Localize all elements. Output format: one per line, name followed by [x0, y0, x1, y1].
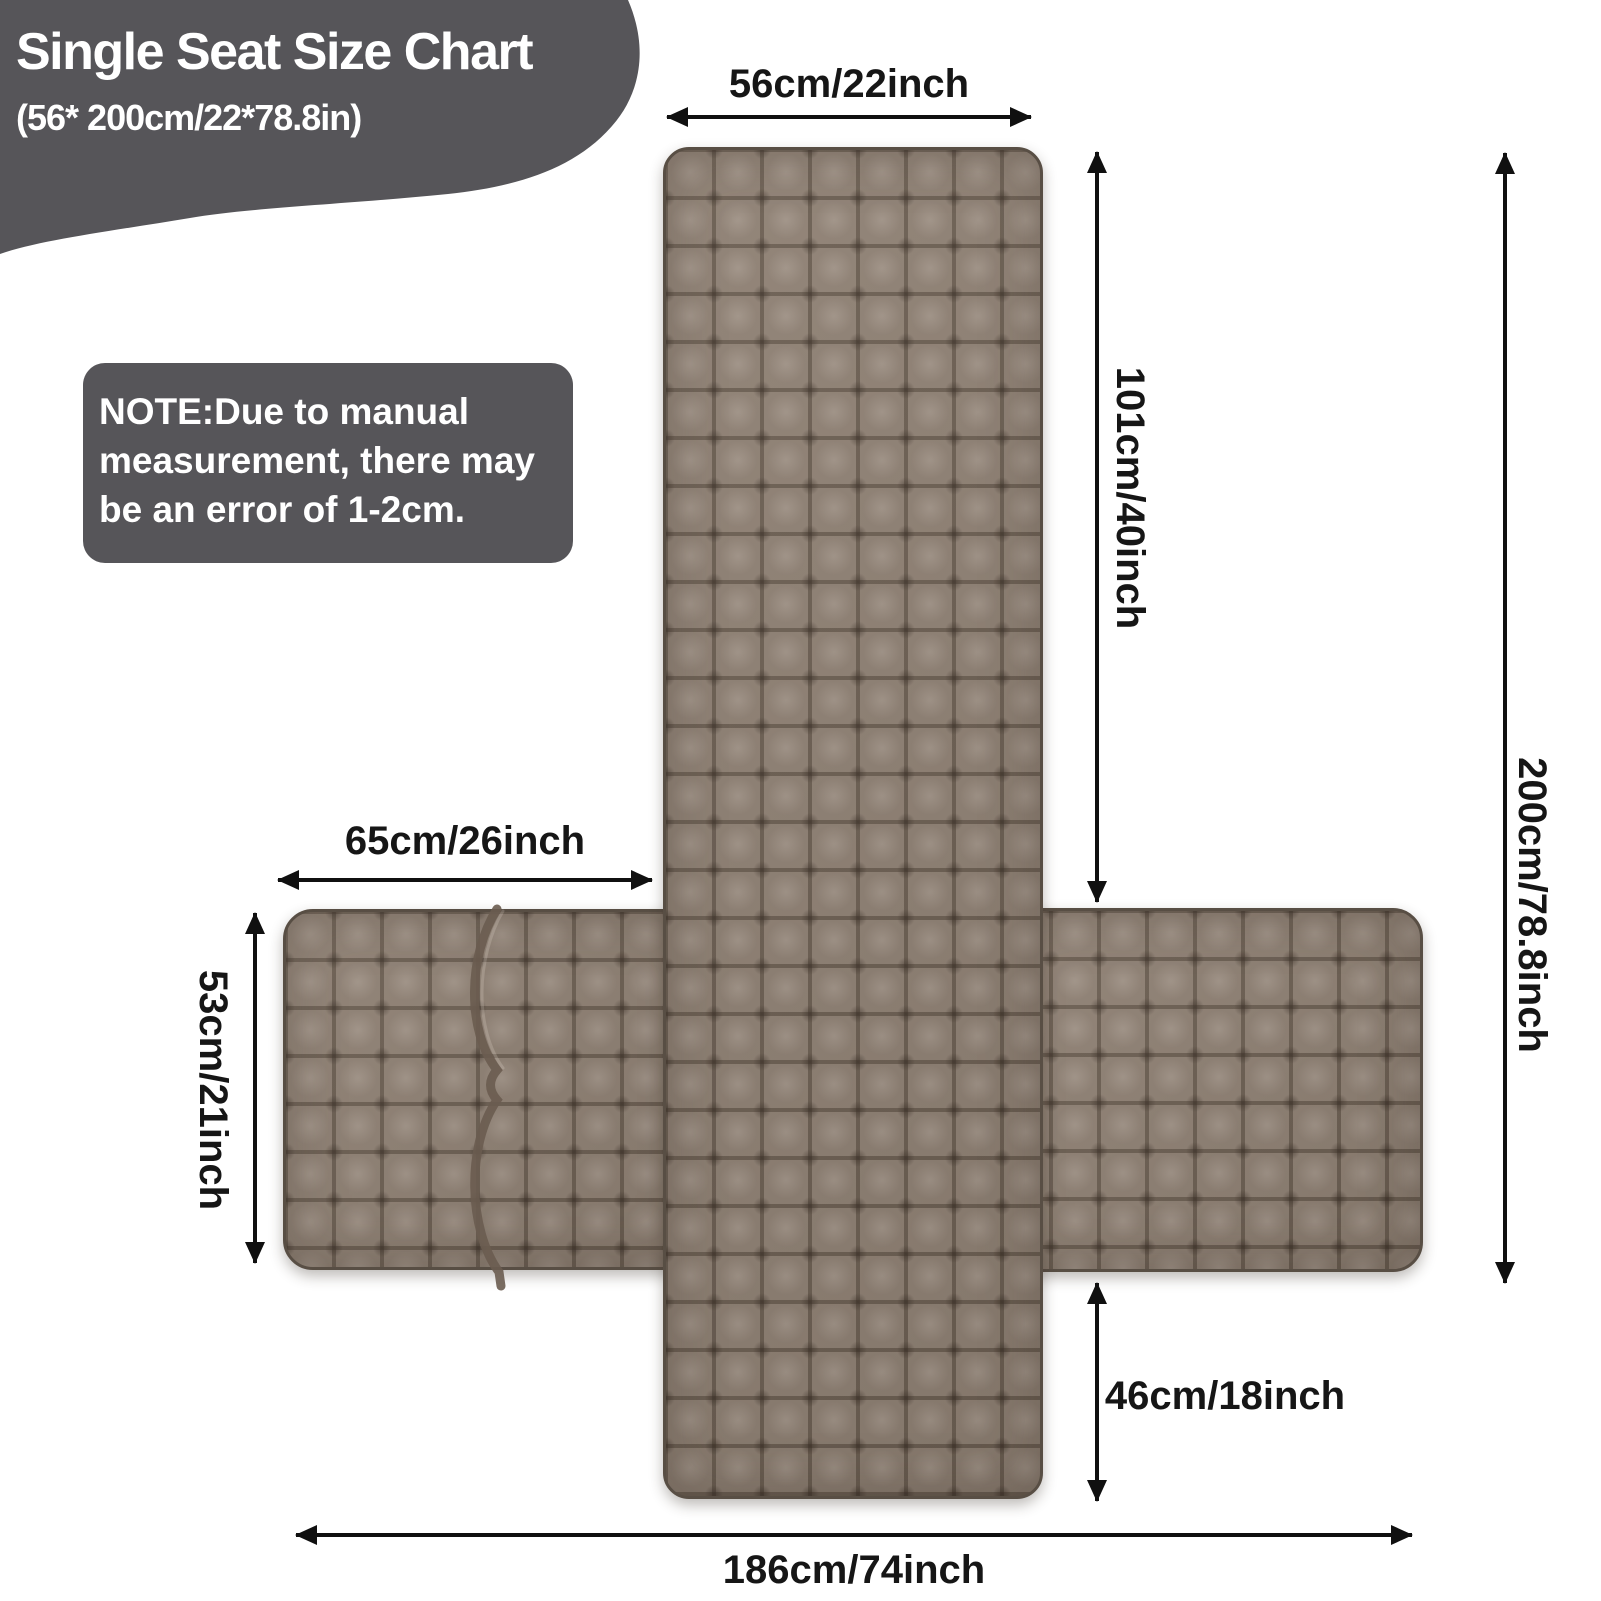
cover-right-arm-flap [1000, 908, 1423, 1272]
page-title: Single Seat Size Chart [16, 26, 532, 78]
arrow-backrest-height [1095, 152, 1099, 902]
dim-left-arm-width: 65cm/26inch [345, 821, 585, 861]
arrow-front-drop [1095, 1283, 1099, 1501]
dim-front-drop: 46cm/18inch [1105, 1376, 1345, 1416]
arrow-left-arm-width [278, 878, 652, 882]
page-subtitle: (56* 200cm/22*78.8in) [16, 100, 361, 136]
note-box: NOTE:Due to manual measurement, there ma… [83, 363, 573, 563]
cover-left-arm-flap [283, 909, 703, 1270]
dim-left-arm-height: 53cm/21inch [193, 970, 233, 1210]
note-text: NOTE:Due to manual measurement, there ma… [99, 391, 535, 530]
title-panel: Single Seat Size Chart (56* 200cm/22*78.… [0, 0, 660, 270]
arrow-left-arm-height [253, 913, 257, 1263]
dim-total-width: 186cm/74inch [723, 1550, 985, 1590]
arrow-total-width [296, 1533, 1412, 1537]
dim-top-width: 56cm/22inch [729, 64, 969, 104]
dim-total-length: 200cm/78.8inch [1512, 757, 1552, 1053]
arrow-total-length [1503, 153, 1507, 1283]
dim-backrest-height: 101cm/40inch [1110, 367, 1150, 629]
arrow-top-width [667, 115, 1031, 119]
cover-backrest-seat-strip [663, 147, 1043, 1499]
size-chart-page: { "title_block": { "title": "Single Seat… [0, 0, 1601, 1601]
